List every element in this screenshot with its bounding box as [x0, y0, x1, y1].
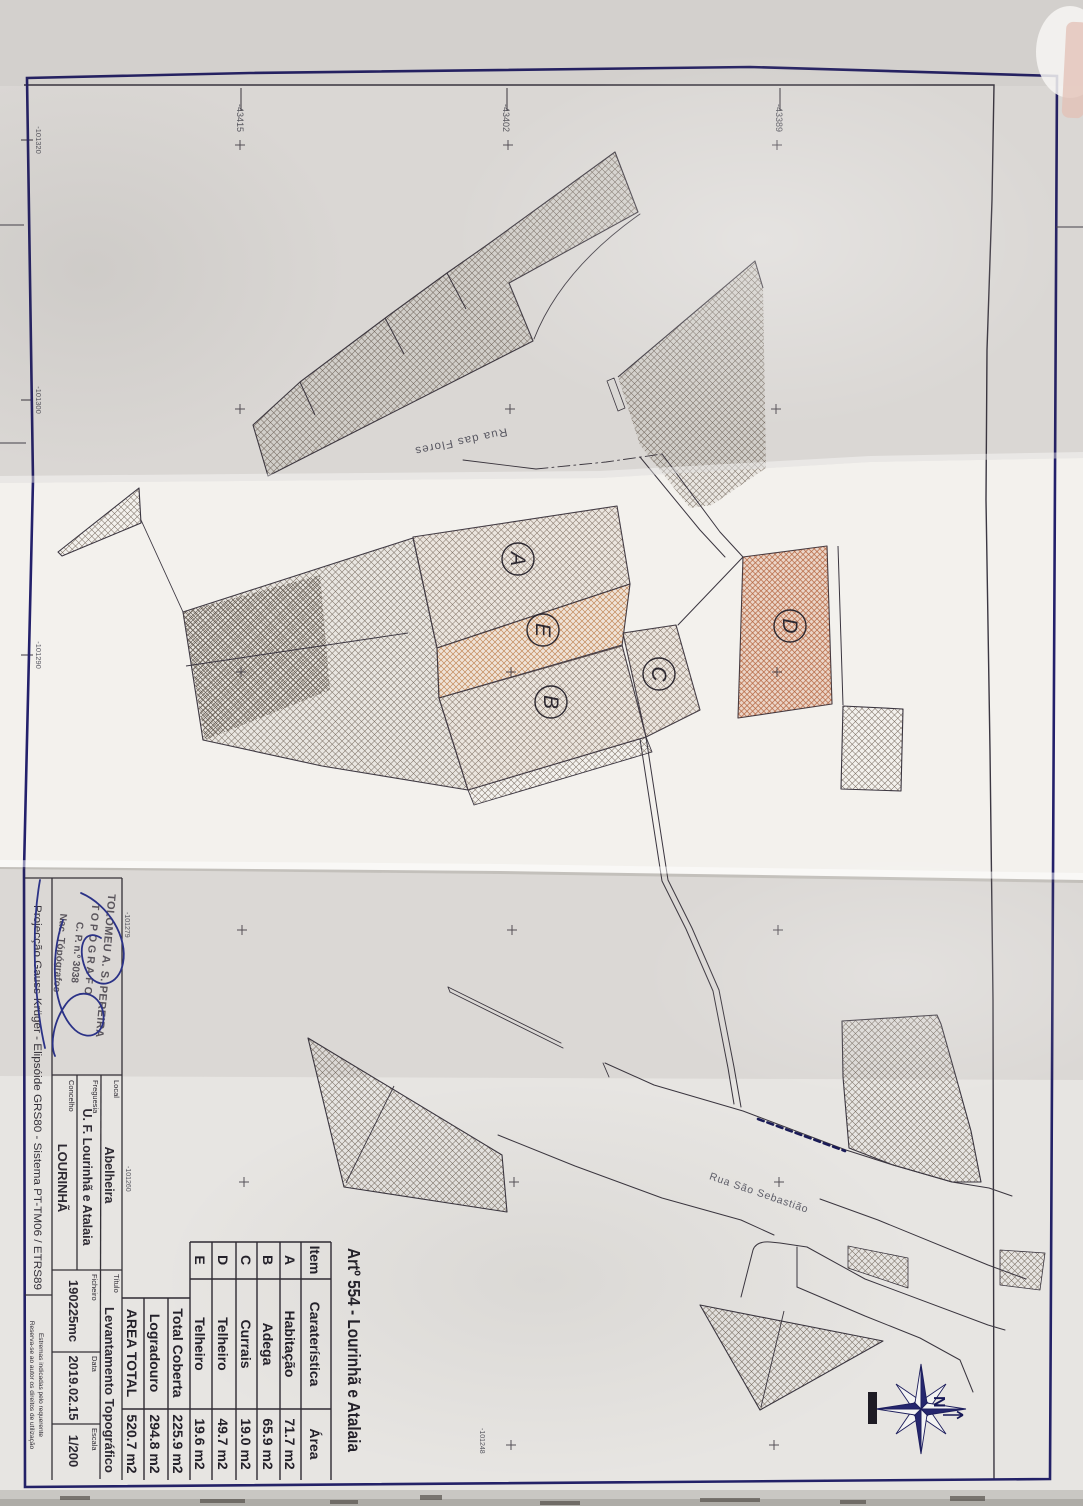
- svg-text:C: C: [647, 666, 670, 682]
- svg-text:D: D: [778, 618, 801, 633]
- svg-text:E: E: [531, 623, 554, 638]
- svg-text:B: B: [539, 695, 562, 709]
- svg-text:A: A: [506, 550, 529, 566]
- svg-text:-101290: -101290: [34, 641, 43, 669]
